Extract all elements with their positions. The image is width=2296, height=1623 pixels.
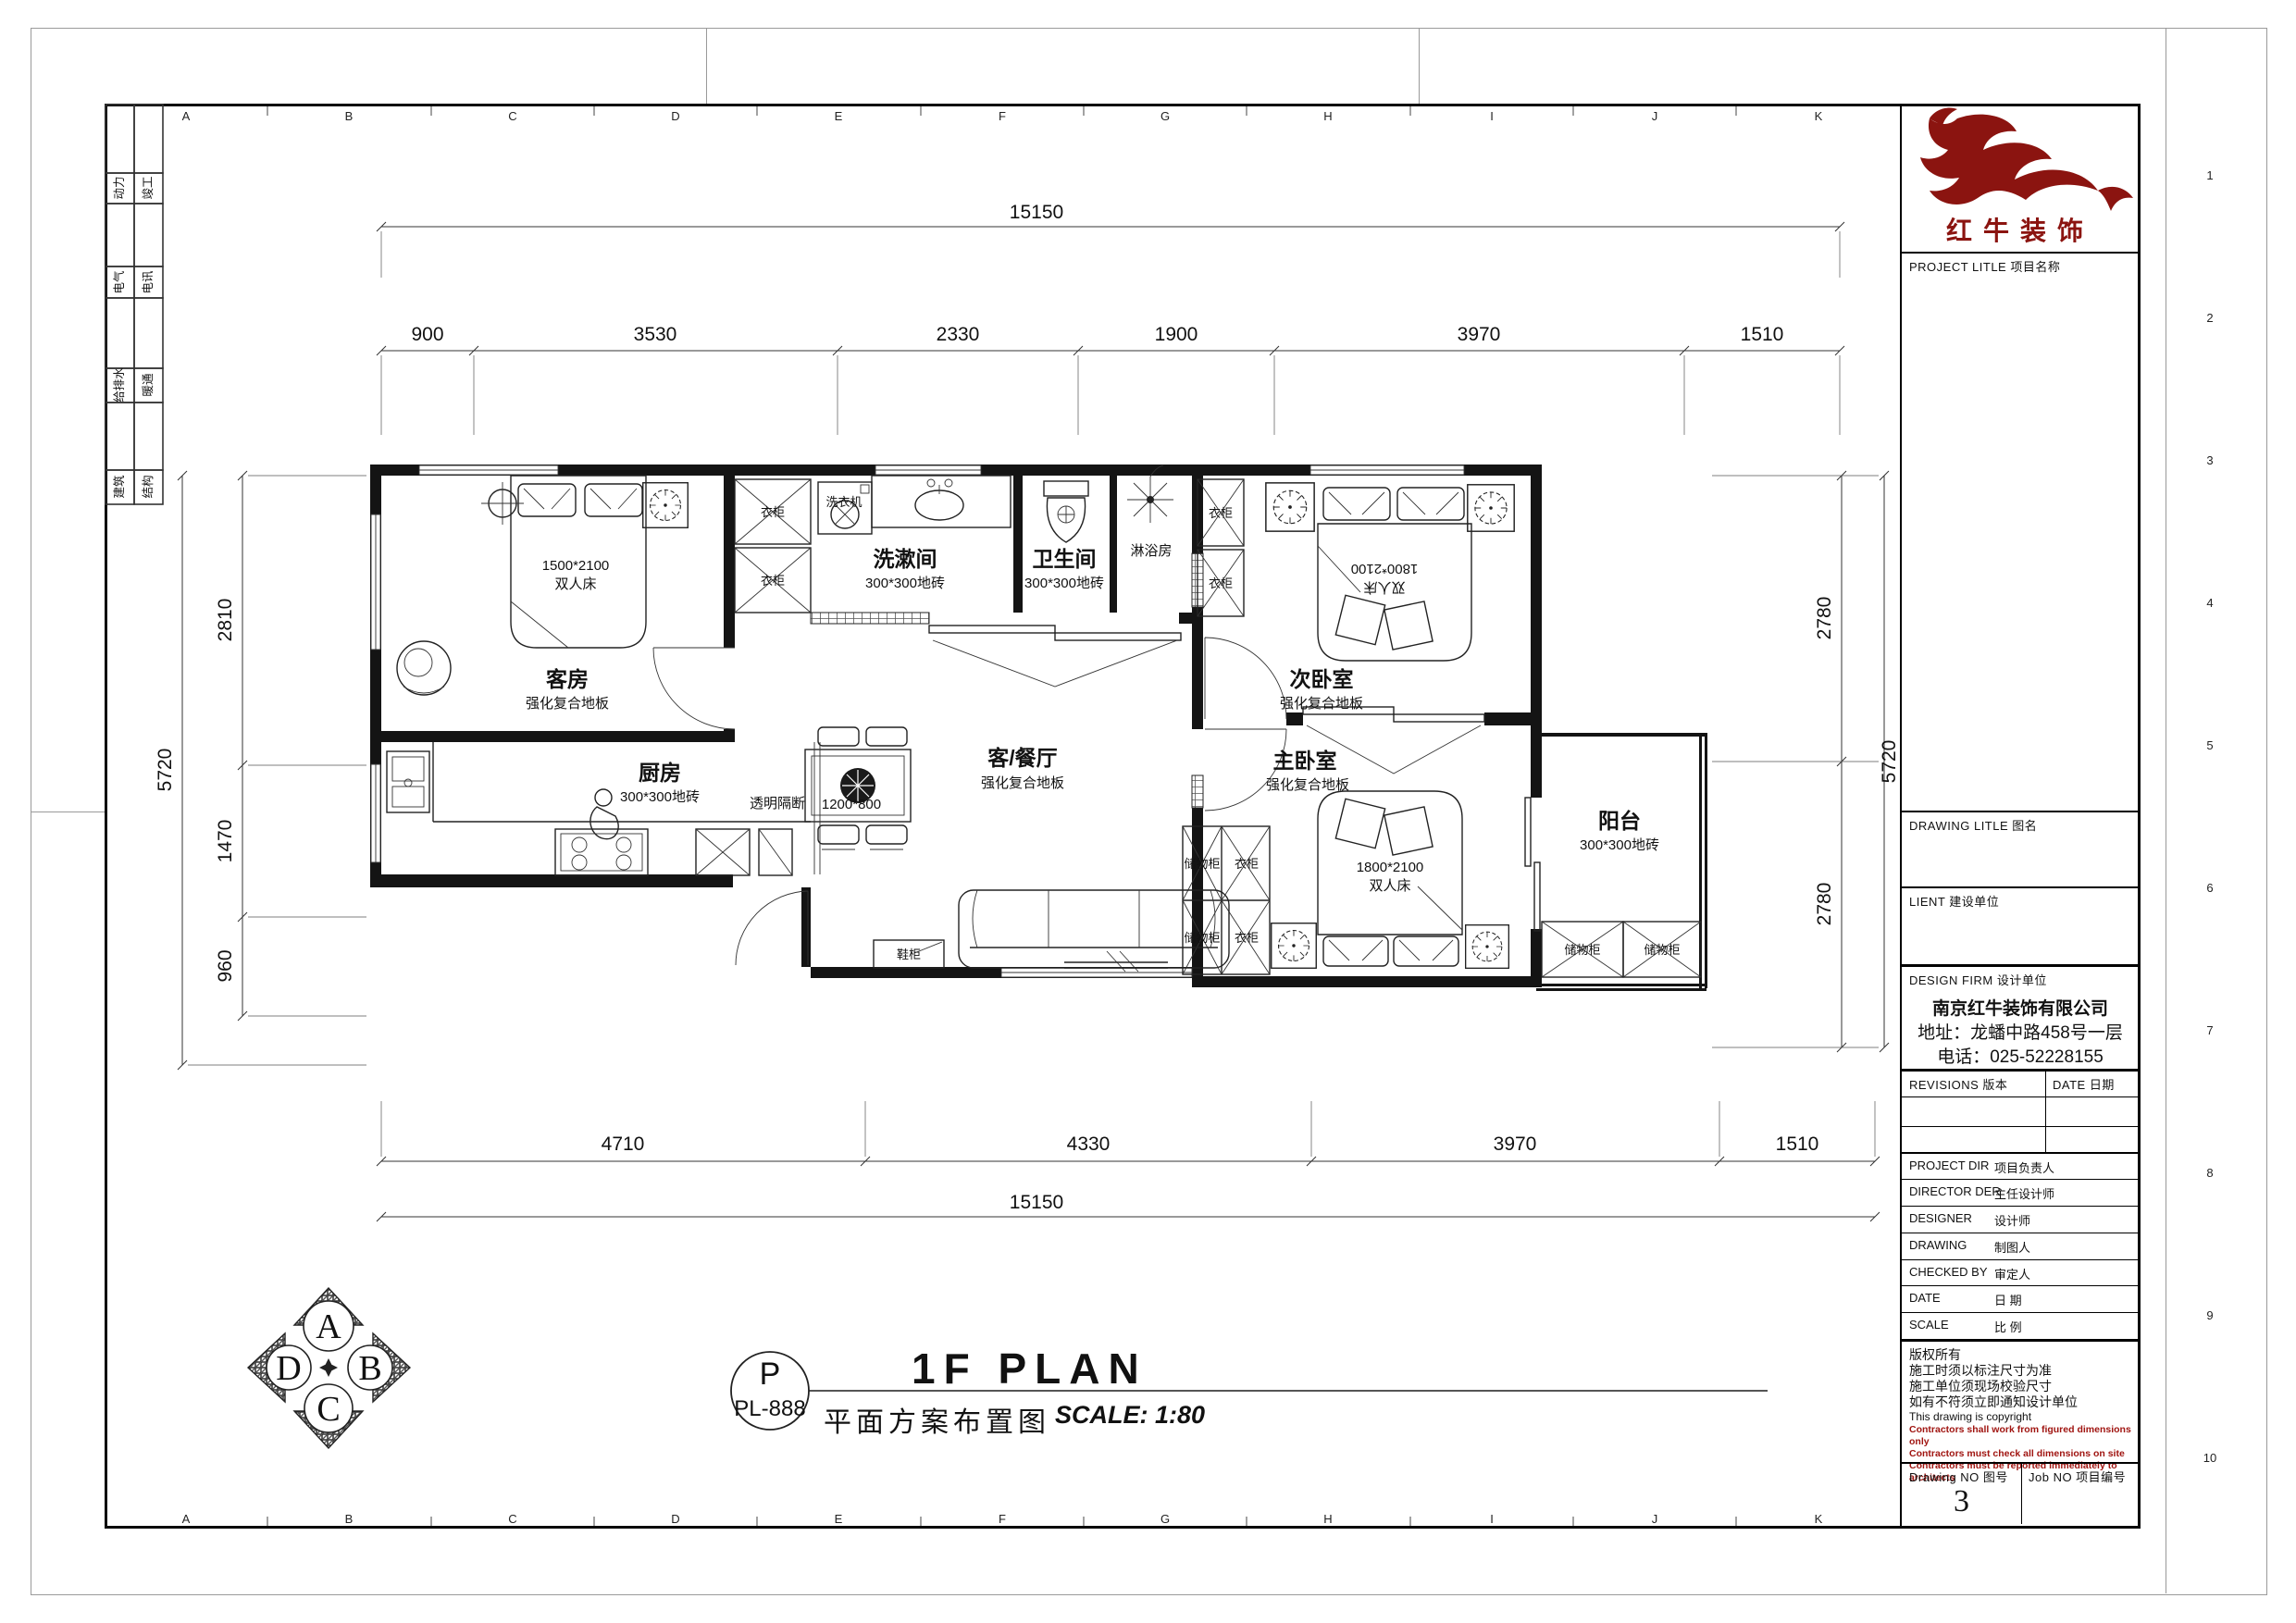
grid-letter: E xyxy=(835,109,843,123)
storage-label: 储物柜 xyxy=(1564,943,1600,957)
dim-top-5: 1510 xyxy=(1741,324,1784,345)
grid-number: 3 xyxy=(2206,453,2213,467)
wardrobe-label: 衣柜 xyxy=(1235,931,1259,945)
grid-number: 10 xyxy=(2203,1451,2216,1465)
copyright-red-line: Contractors must check all dimensions on… xyxy=(1909,1448,2131,1460)
grid-letter: F xyxy=(999,109,1006,123)
wardrobe-guest xyxy=(735,479,811,613)
toilet xyxy=(1044,481,1088,542)
grid-letter: H xyxy=(1323,109,1332,123)
revisions-label: REVISIONS 版本 xyxy=(1909,1075,2007,1093)
grid-letter: B xyxy=(345,109,354,123)
grid-number: 5 xyxy=(2206,738,2213,752)
revisions-area: REVISIONS 版本 DATE 日期 xyxy=(1902,1069,2139,1152)
ceiling-light-icon xyxy=(481,482,524,525)
grid-ruler-right: 1 2 3 4 5 6 7 8 9 10 xyxy=(2203,168,2216,1465)
dim-top-2: 2330 xyxy=(937,324,980,345)
sofa xyxy=(959,890,1229,968)
dim-left-total: 5720 xyxy=(155,749,176,792)
compass-star-icon xyxy=(319,1358,338,1377)
room-balcony: 阳台 xyxy=(1598,809,1641,833)
number-cells: Drawing NO 图号 Job NO 项目编号 3 xyxy=(1902,1462,2139,1524)
revisions-divider xyxy=(2045,1072,2046,1152)
plant-icon xyxy=(643,483,689,528)
job-no-label: Job NO 项目编号 xyxy=(2029,1468,2126,1485)
logo-name: 红牛装饰 xyxy=(1902,211,2139,248)
room-living: 客/餐厅 xyxy=(987,746,1057,770)
wardrobe-second xyxy=(1198,479,1244,616)
storage-label: 储物柜 xyxy=(1184,931,1220,945)
row-en: SCALE xyxy=(1909,1318,1949,1332)
copyright-line: This drawing is copyright xyxy=(1909,1410,2131,1424)
grid-number: 8 xyxy=(2206,1166,2213,1180)
title-block: 红牛装饰 PROJECT LITLE 项目名称 DRAWING LITLE 图名… xyxy=(1900,104,2139,1526)
room-labels: 客房 强化复合地板 1500*2100 双人床 洗漱间 300*300地砖 洗衣… xyxy=(526,495,1681,961)
dim-right-1: 2780 xyxy=(1814,883,1835,926)
wardrobe-label: 衣柜 xyxy=(1209,506,1233,520)
row-cn: 审定人 xyxy=(1994,1265,2030,1282)
room-second-floor: 强化复合地板 xyxy=(1280,695,1363,712)
copyright-line: 施工单位须现场校验尺寸 xyxy=(1909,1379,2131,1394)
stove xyxy=(555,829,648,875)
copyright-line: 版权所有 xyxy=(1909,1347,2131,1363)
master-bed-size: 1800*2100 xyxy=(1357,860,1424,875)
dimensions: 15150 900 3530 2330 1900 3970 1510 4710 … xyxy=(155,202,1900,1221)
drawing-title-cell: DRAWING LITLE 图名 xyxy=(1902,811,2139,886)
dim-bottom-3: 1510 xyxy=(1776,1134,1819,1155)
room-guest-floor: 强化复合地板 xyxy=(526,695,609,712)
drawing-title-en: 1F PLAN xyxy=(912,1344,1148,1394)
wardrobe-label: 衣柜 xyxy=(1235,857,1259,871)
plant-icon xyxy=(1468,485,1514,531)
dim-left-0: 2810 xyxy=(215,599,236,642)
row-scale: SCALE比 例 xyxy=(1902,1312,2139,1339)
plant-icon xyxy=(1272,923,1317,969)
compass-right: B xyxy=(358,1349,381,1388)
row-cn: 制图人 xyxy=(1994,1238,2030,1256)
design-firm-label: DESIGN FIRM 设计单位 xyxy=(1909,971,2047,988)
firm-name: 南京红牛装饰有限公司 xyxy=(1902,995,2139,1020)
room-wc: 卫生间 xyxy=(1033,547,1097,571)
copyright-line: 施工时须以标注尺寸为准 xyxy=(1909,1363,2131,1379)
drawing-scale: SCALE: 1:80 xyxy=(1055,1401,1205,1430)
grid-number: 2 xyxy=(2206,311,2213,325)
grid-number: 6 xyxy=(2206,881,2213,895)
guest-bed-size: 1500*2100 xyxy=(542,558,610,574)
grid-letter: C xyxy=(508,109,516,123)
room-master: 主卧室 xyxy=(1273,749,1337,773)
second-bed-label-group: 双人床 1800*2100 xyxy=(1351,561,1419,595)
grid-letter: D xyxy=(671,109,679,123)
dim-left-2: 960 xyxy=(215,949,236,982)
grid-letter: J xyxy=(1652,1512,1658,1526)
guest-bed-label: 双人床 xyxy=(554,576,596,592)
grid-ruler-bottom: A B C D E F G H I J K xyxy=(182,1512,1823,1526)
copyright-line: 如有不符须立即通知设计单位 xyxy=(1909,1394,2131,1410)
room-guest: 客房 xyxy=(546,667,589,691)
dim-right-total: 5720 xyxy=(1879,740,1900,784)
dim-bottom-2: 3970 xyxy=(1494,1134,1537,1155)
drawing-title-label: DRAWING LITLE 图名 xyxy=(1909,816,2037,834)
grid-letter: I xyxy=(1490,1512,1494,1526)
row-en: PROJECT DIR xyxy=(1909,1158,1989,1172)
orientation-compass: A B C D xyxy=(239,1279,419,1459)
grid-letter: A xyxy=(182,109,191,123)
logo-cell: 红牛装饰 xyxy=(1902,104,2139,252)
dim-right-0: 2780 xyxy=(1814,597,1835,640)
stamp-code: PL-888 xyxy=(734,1396,805,1421)
storage-label: 储物柜 xyxy=(1644,943,1680,957)
copyright-cell: 版权所有 施工时须以标注尺寸为准 施工单位须现场校验尺寸 如有不符须立即通知设计… xyxy=(1902,1339,2139,1462)
room-kitchen: 厨房 xyxy=(639,761,681,785)
drawing-stamp: P PL-888 xyxy=(727,1347,814,1436)
grid-letter: A xyxy=(182,1512,191,1526)
row-en: DRAWING xyxy=(1909,1238,1967,1252)
drawing-title-cn: 平面方案布置图 xyxy=(824,1399,1050,1440)
drawing-no-value: 3 xyxy=(1902,1484,2021,1519)
project-cell: PROJECT LITLE 项目名称 xyxy=(1902,252,2139,811)
second-bed-size: 1800*2100 xyxy=(1351,561,1419,576)
dining-table xyxy=(805,727,911,849)
revisions-date-label: DATE 日期 xyxy=(2053,1075,2115,1093)
grid-letter: K xyxy=(1815,109,1823,123)
rednbull-logo-icon xyxy=(1902,105,2139,212)
dim-top-3: 1900 xyxy=(1155,324,1198,345)
dim-left-1: 1470 xyxy=(215,820,236,863)
guest-armchair xyxy=(397,641,451,695)
grid-letter: F xyxy=(999,1512,1006,1526)
grid-letter: I xyxy=(1490,109,1494,123)
room-wash-floor: 300*300地砖 xyxy=(865,576,945,591)
row-en: DESIGNER xyxy=(1909,1211,1972,1225)
wardrobe-label: 衣柜 xyxy=(761,505,785,519)
dim-bottom-0: 4710 xyxy=(602,1134,645,1155)
storage-label: 储物柜 xyxy=(1184,857,1220,871)
room-living-floor: 强化复合地板 xyxy=(981,774,1064,791)
dim-total-bottom: 15150 xyxy=(1010,1192,1063,1213)
dim-top-0: 900 xyxy=(411,324,443,345)
revisions-line xyxy=(1902,1096,2139,1097)
grid-letter: H xyxy=(1323,1512,1332,1526)
drawing-sheet: 动力 竣工 电气 电讯 给排水 暖通 建筑 结构 xyxy=(0,0,2296,1623)
row-date: DATE日 期 xyxy=(1902,1285,2139,1312)
row-cn: 日 期 xyxy=(1994,1291,2022,1308)
grid-letter: D xyxy=(671,1512,679,1526)
dim-top-4: 3970 xyxy=(1458,324,1501,345)
row-cn: 项目负责人 xyxy=(1994,1158,2054,1176)
shoe-cabinet-label: 鞋柜 xyxy=(897,948,921,961)
wash-basin xyxy=(872,476,1011,527)
client-cell: LIENT 建设单位 xyxy=(1902,886,2139,964)
project-label: PROJECT LITLE 项目名称 xyxy=(1909,257,2060,275)
row-cn: 比 例 xyxy=(1994,1318,2022,1335)
dim-top-1: 3530 xyxy=(634,324,677,345)
client-label: LIENT 建设单位 xyxy=(1909,892,1999,910)
grid-letter: E xyxy=(835,1512,843,1526)
row-cn: 设计师 xyxy=(1994,1211,2030,1229)
doors xyxy=(653,638,1286,965)
glass-partition xyxy=(814,742,820,874)
room-wc-floor: 300*300地砖 xyxy=(1024,576,1104,591)
row-drawing: DRAWING制图人 xyxy=(1902,1233,2139,1259)
compass-top: A xyxy=(316,1307,341,1346)
drawing-no-label: Drawing NO 图号 xyxy=(1909,1468,2008,1485)
firm-phone: 电话：025-52228155 xyxy=(1902,1043,2139,1068)
stamp-letter: P xyxy=(760,1357,781,1392)
grid-letter: K xyxy=(1815,1512,1823,1526)
title-underline xyxy=(733,1390,1768,1392)
room-master-floor: 强化复合地板 xyxy=(1266,776,1349,793)
cook-figure xyxy=(590,789,618,839)
grid-letter: G xyxy=(1160,1512,1170,1526)
row-en: DATE xyxy=(1909,1291,1941,1305)
grid-letter: B xyxy=(345,1512,354,1526)
master-bed-label: 双人床 xyxy=(1369,878,1410,894)
grid-ruler-top: A B C D E F G H I J K xyxy=(182,106,1823,123)
wardrobe-label: 衣柜 xyxy=(1209,576,1233,590)
design-firm-cell: DESIGN FIRM 设计单位 南京红牛装饰有限公司 地址：龙蟠中路458号一… xyxy=(1902,964,2139,1069)
plant-icon xyxy=(1266,483,1314,531)
table-size: 1200*800 xyxy=(822,797,881,812)
dim-total-top: 15150 xyxy=(1010,202,1063,223)
grid-letter: C xyxy=(508,1512,516,1526)
row-director: DIRECTOR DER主任设计师 xyxy=(1902,1179,2139,1206)
number-divider xyxy=(2021,1464,2022,1524)
wardrobe-label: 衣柜 xyxy=(761,574,785,588)
grid-number: 7 xyxy=(2206,1023,2213,1037)
partition-label: 透明隔断 xyxy=(750,796,805,811)
washer-label: 洗衣机 xyxy=(825,495,862,509)
grid-letter: G xyxy=(1160,109,1170,123)
row-project-dir: PROJECT DIR项目负责人 xyxy=(1902,1152,2139,1179)
room-shower: 淋浴房 xyxy=(1130,543,1172,559)
room-second: 次卧室 xyxy=(1290,667,1354,691)
second-bed-label: 双人床 xyxy=(1363,579,1405,595)
copyright-red-line: Contractors shall work from figured dime… xyxy=(1909,1424,2131,1448)
grid-number: 9 xyxy=(2206,1308,2213,1322)
walls xyxy=(370,465,1707,991)
revisions-line xyxy=(1902,1126,2139,1127)
firm-address: 地址：龙蟠中路458号一层 xyxy=(1902,1019,2139,1044)
row-cn: 主任设计师 xyxy=(1994,1184,2054,1202)
room-kitchen-floor: 300*300地砖 xyxy=(620,789,700,805)
kitchen-counter xyxy=(387,742,811,822)
plant-icon xyxy=(1466,925,1509,969)
grid-number: 4 xyxy=(2206,596,2213,610)
row-en: DIRECTOR DER xyxy=(1909,1184,2001,1198)
grid-number: 1 xyxy=(2206,168,2213,182)
dim-bottom-1: 4330 xyxy=(1067,1134,1111,1155)
compass-left: D xyxy=(276,1349,301,1388)
row-checked: CHECKED BY审定人 xyxy=(1902,1259,2139,1285)
room-balcony-floor: 300*300地砖 xyxy=(1580,837,1659,853)
grid-letter: J xyxy=(1652,109,1658,123)
room-wash: 洗漱间 xyxy=(874,547,937,571)
compass-bottom: C xyxy=(316,1390,340,1429)
row-designer: DESIGNER设计师 xyxy=(1902,1206,2139,1233)
row-en: CHECKED BY xyxy=(1909,1265,1988,1279)
kitchen-cabinet xyxy=(696,829,792,875)
